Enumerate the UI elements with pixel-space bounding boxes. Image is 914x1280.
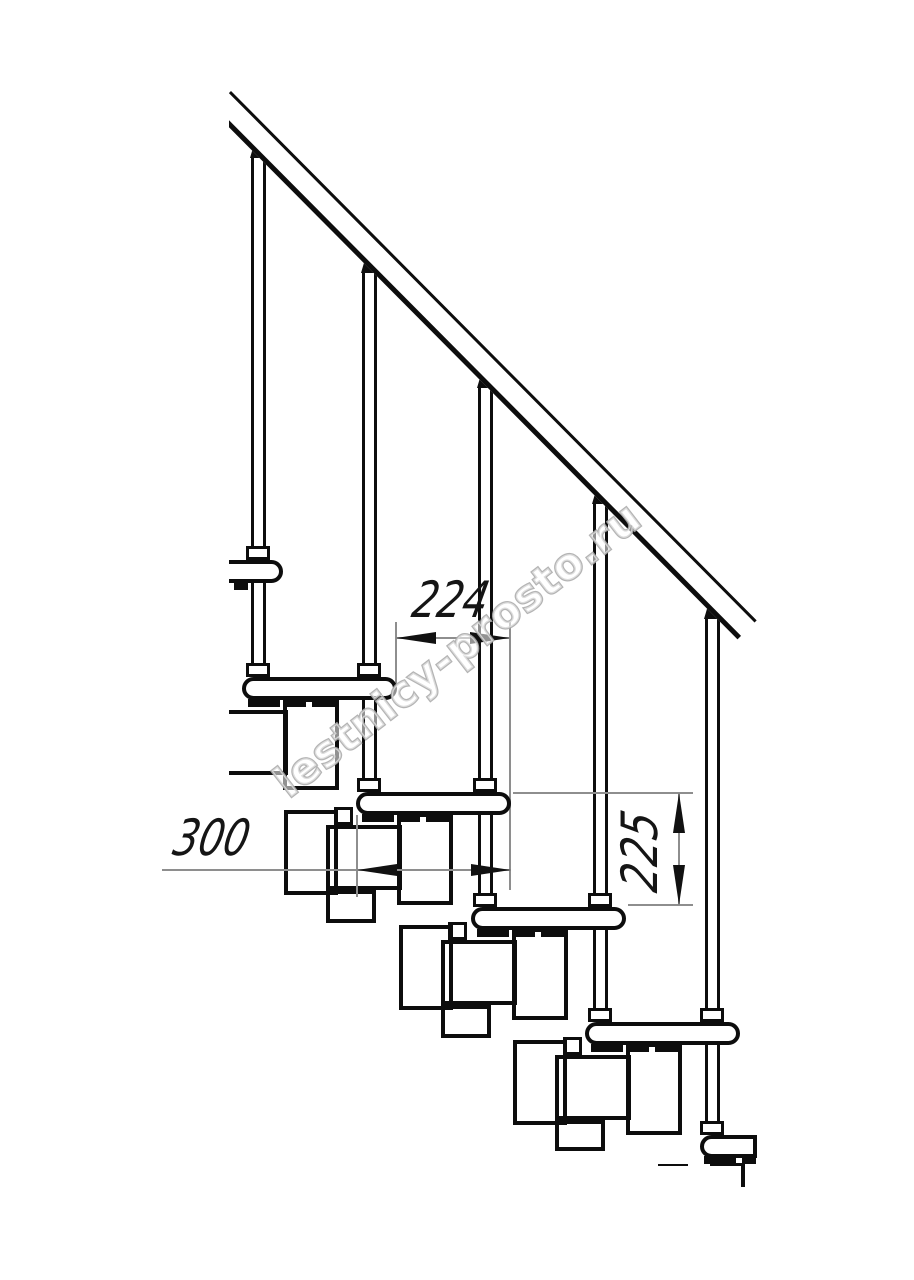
module-neck xyxy=(563,1037,582,1055)
tread xyxy=(585,1022,740,1045)
dimension-label-rise: 225 xyxy=(615,807,665,896)
baluster-shaft xyxy=(593,501,608,1022)
module-column xyxy=(512,928,568,1020)
baluster-shaft xyxy=(705,616,720,1135)
module-neck xyxy=(334,807,353,825)
baluster-collar xyxy=(357,663,381,677)
module-cut-line xyxy=(658,1164,688,1166)
module-tab xyxy=(555,1120,605,1151)
extension-line xyxy=(509,622,511,890)
module-tab xyxy=(326,890,376,923)
baluster-shaft xyxy=(251,155,266,677)
staircase-drawing: 224 300 225 lestnicy-prosto.ru xyxy=(0,0,914,1280)
tread-clamp xyxy=(362,814,452,822)
tread-clamp xyxy=(248,699,338,707)
module-square xyxy=(441,940,517,1005)
dimension-label-depth: 300 xyxy=(169,813,254,863)
baluster-collar xyxy=(473,893,497,907)
crop-mask xyxy=(0,0,229,806)
dimension-line-depth xyxy=(162,869,511,871)
tread xyxy=(356,792,511,815)
tread-clamp xyxy=(591,1044,681,1052)
module-cut-line xyxy=(710,1163,742,1166)
dimension-arrow xyxy=(673,865,685,905)
module-square xyxy=(555,1055,631,1120)
crop-mask xyxy=(0,877,229,1280)
module-neck xyxy=(448,922,467,940)
dimension-arrow xyxy=(673,793,685,833)
baluster-collar xyxy=(357,778,381,792)
baluster-collar xyxy=(246,663,270,677)
baluster-collar xyxy=(700,1008,724,1022)
tread xyxy=(471,907,626,930)
tread xyxy=(700,1135,757,1158)
baluster-collar xyxy=(588,893,612,907)
module-tab xyxy=(441,1005,491,1038)
baluster-collar xyxy=(700,1121,724,1135)
module-column xyxy=(397,813,453,905)
extension-line xyxy=(513,792,693,794)
dimension-arrow xyxy=(471,864,511,876)
extension-line xyxy=(356,815,358,897)
tread-clamp xyxy=(477,929,567,937)
module-cut-line xyxy=(741,1163,745,1187)
module-column xyxy=(626,1043,682,1135)
tread-clamp xyxy=(234,583,248,590)
module-square xyxy=(326,825,402,890)
baluster-collar xyxy=(246,546,270,560)
baluster-collar xyxy=(473,778,497,792)
baluster-collar xyxy=(588,1008,612,1022)
dimension-arrow xyxy=(357,864,397,876)
